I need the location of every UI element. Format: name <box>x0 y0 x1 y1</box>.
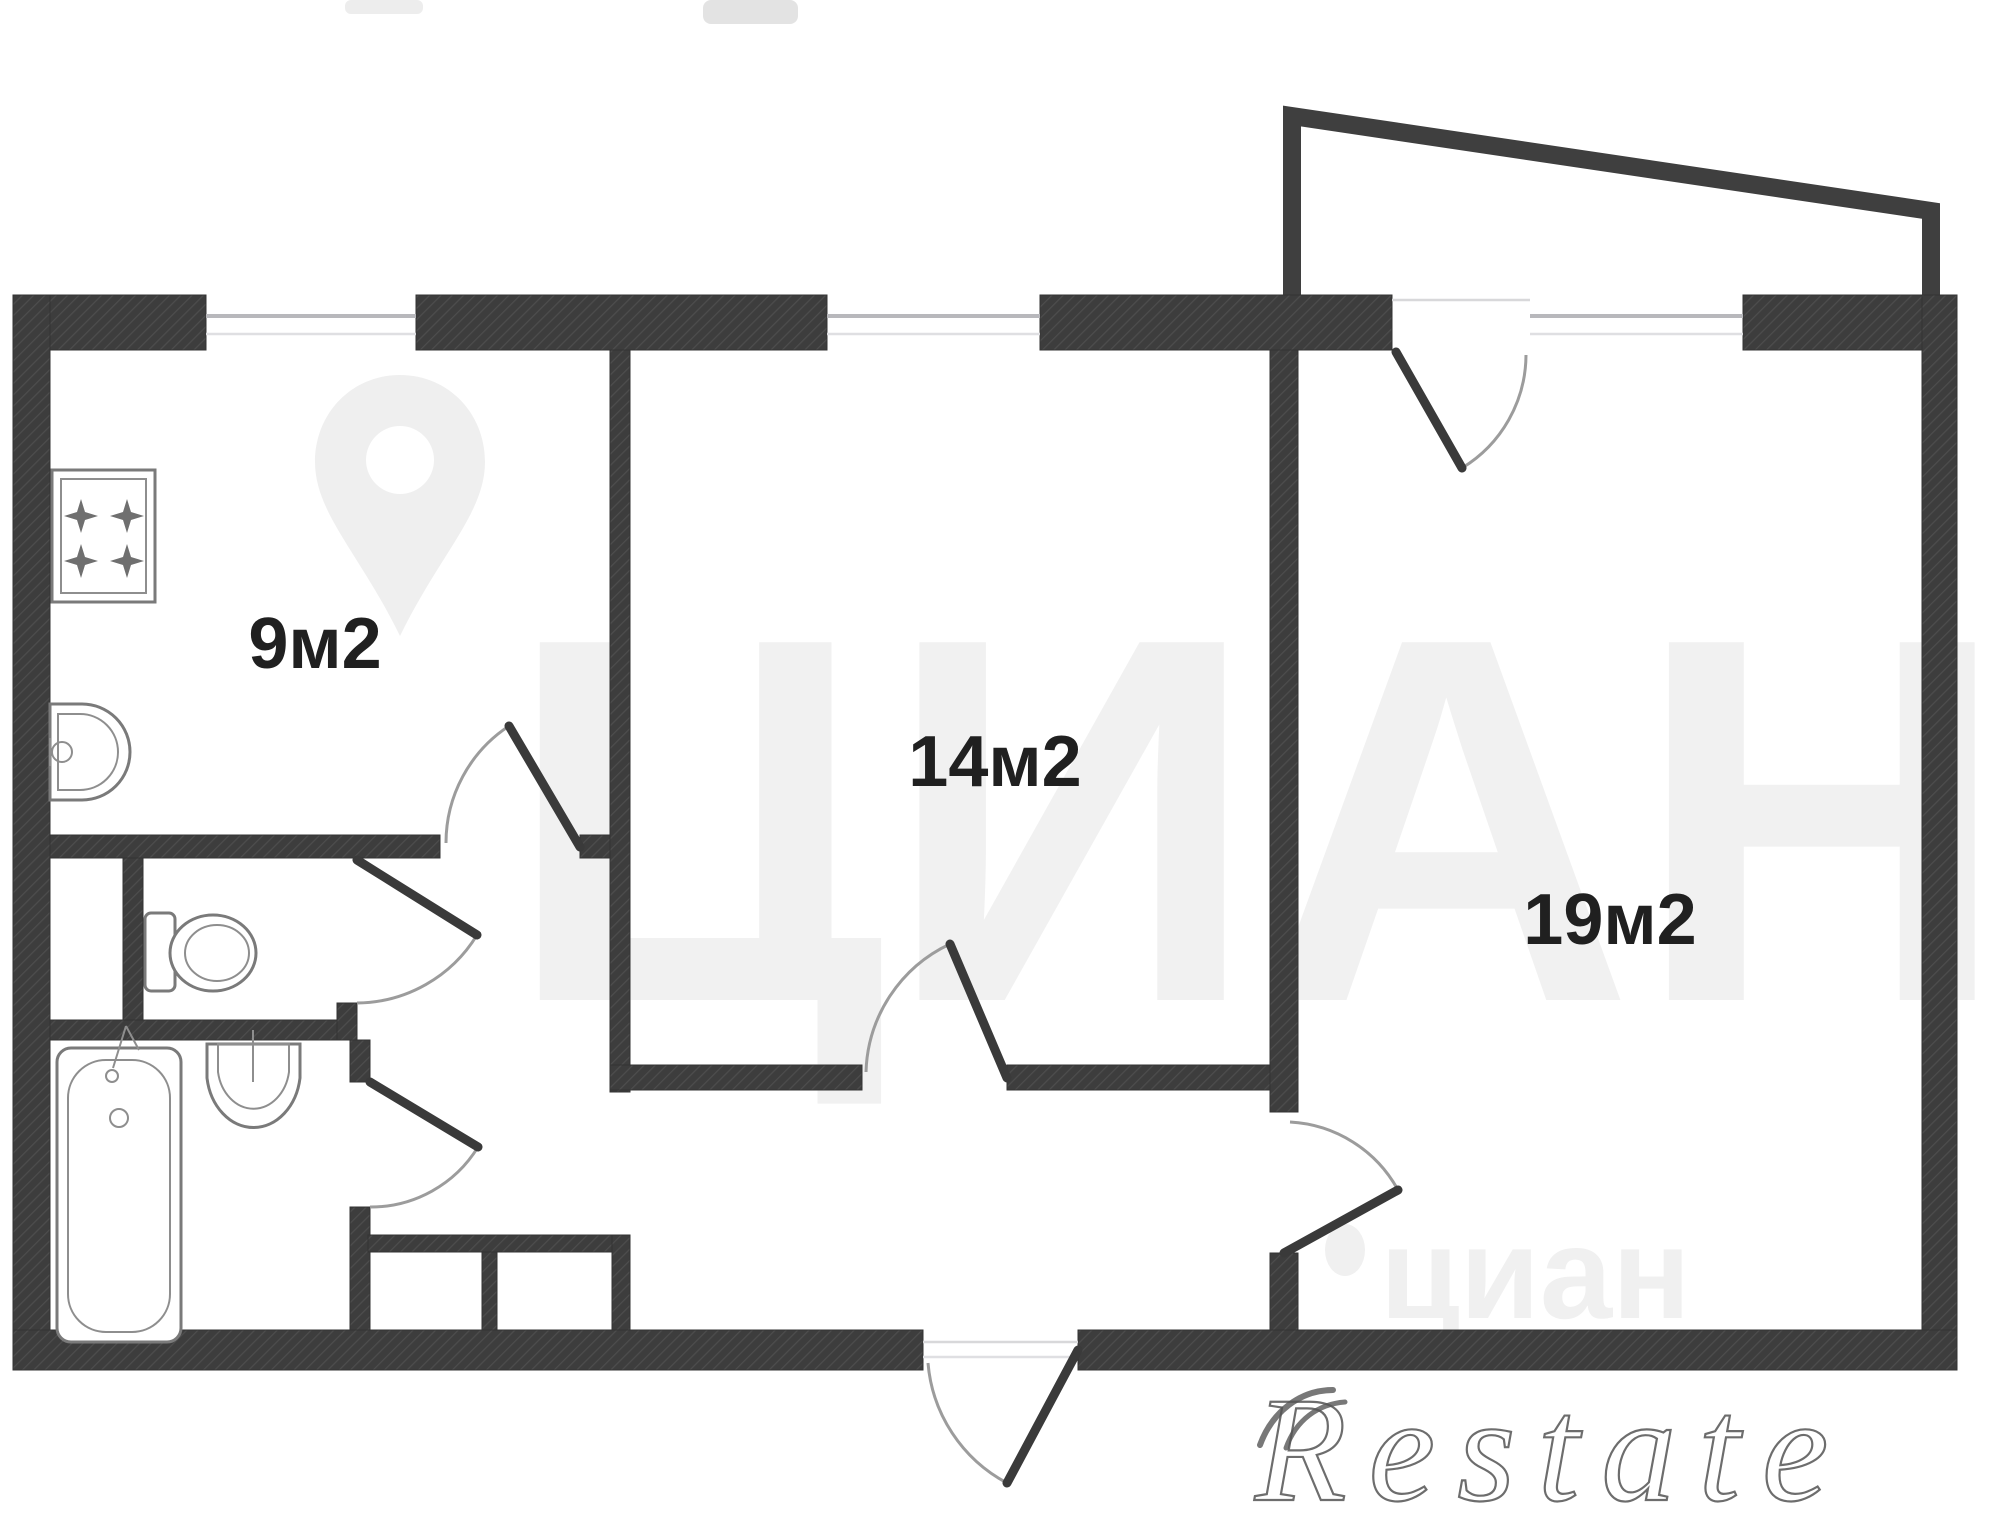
wall-kitchen-bottom <box>50 835 440 858</box>
door-leaf <box>357 860 477 935</box>
stove-outer <box>52 470 155 602</box>
washbasin-icon <box>207 1030 300 1128</box>
door-leaf <box>1396 352 1462 468</box>
wall-top-b <box>416 295 827 350</box>
door-swing-arc <box>1462 355 1526 468</box>
room-label-19: 19м2 <box>1523 880 1696 960</box>
wall-bathroom-top <box>50 1020 357 1040</box>
wall-room19-left-lower <box>1270 1253 1298 1330</box>
wall-closet-top <box>368 1235 630 1252</box>
kitchen-sink-icon <box>50 704 130 800</box>
watermark-remnant-icon <box>345 0 423 14</box>
wall-closet-right <box>612 1235 630 1330</box>
room14-window <box>827 316 1040 334</box>
door-swing-arc <box>357 935 477 1003</box>
wall-kitchen-bottom-stub <box>580 835 610 858</box>
wall-wc-right-stub <box>337 1003 357 1040</box>
bathroom-door <box>370 1082 478 1207</box>
toilet-icon <box>145 913 256 991</box>
wall-room14-room19-divider <box>1270 350 1298 1112</box>
fixtures-layer <box>50 470 300 1342</box>
room-label-14: 14м2 <box>908 722 1081 802</box>
wall-wc-left <box>123 858 143 1025</box>
map-pin-icon <box>315 375 485 636</box>
map-pin-hole <box>366 426 434 494</box>
floorplan-page: ЦИАН циан <box>0 0 2000 1515</box>
balcony-outline <box>1292 116 1931 300</box>
watermark-remnant-icon <box>703 0 798 24</box>
restate-watermark-text: Restate <box>1254 1367 1851 1515</box>
stove-icon <box>52 470 155 602</box>
wall-top-c <box>1040 295 1392 350</box>
toilet-bowl <box>170 915 256 991</box>
bathtub-icon <box>57 1026 181 1342</box>
wall-bottom-right <box>1078 1330 1957 1370</box>
wall-kitchen-room14-divider <box>610 350 630 1092</box>
wall-right <box>1922 295 1957 1370</box>
door-swing-arc <box>446 726 509 843</box>
watermark-layer: ЦИАН циан <box>315 0 2000 1346</box>
entrance-door <box>928 1350 1078 1483</box>
floorplan-svg: ЦИАН циан <box>0 0 2000 1515</box>
room19-window <box>1530 316 1743 334</box>
cian-watermark-text: ЦИАН <box>505 530 2000 1111</box>
door-leaf <box>1007 1350 1078 1483</box>
wall-left <box>13 295 50 1370</box>
balcony-door <box>1396 352 1526 468</box>
room-label-kitchen: 9м2 <box>248 604 381 684</box>
door-swing-arc <box>928 1363 1007 1483</box>
small-cian-watermark: циан <box>1325 1200 1691 1346</box>
restate-logo: Restate <box>1254 1367 1851 1515</box>
door-swing-arc <box>370 1147 478 1207</box>
map-pin-body <box>315 375 485 636</box>
wall-room14-bottom-right <box>1007 1065 1288 1090</box>
wall-bathroom-right-lower <box>350 1207 370 1330</box>
door-leaf <box>370 1082 478 1147</box>
door-swing-arc <box>1290 1122 1398 1190</box>
wall-bathroom-right-upper <box>350 1040 370 1082</box>
kitchen-window <box>206 316 416 334</box>
wall-closet-divider <box>482 1252 497 1330</box>
wc-door <box>357 860 477 1003</box>
bathtub-outer <box>57 1048 181 1342</box>
wall-room14-bottom-left <box>610 1065 862 1090</box>
cian-small-watermark-text: циан <box>1380 1200 1691 1346</box>
